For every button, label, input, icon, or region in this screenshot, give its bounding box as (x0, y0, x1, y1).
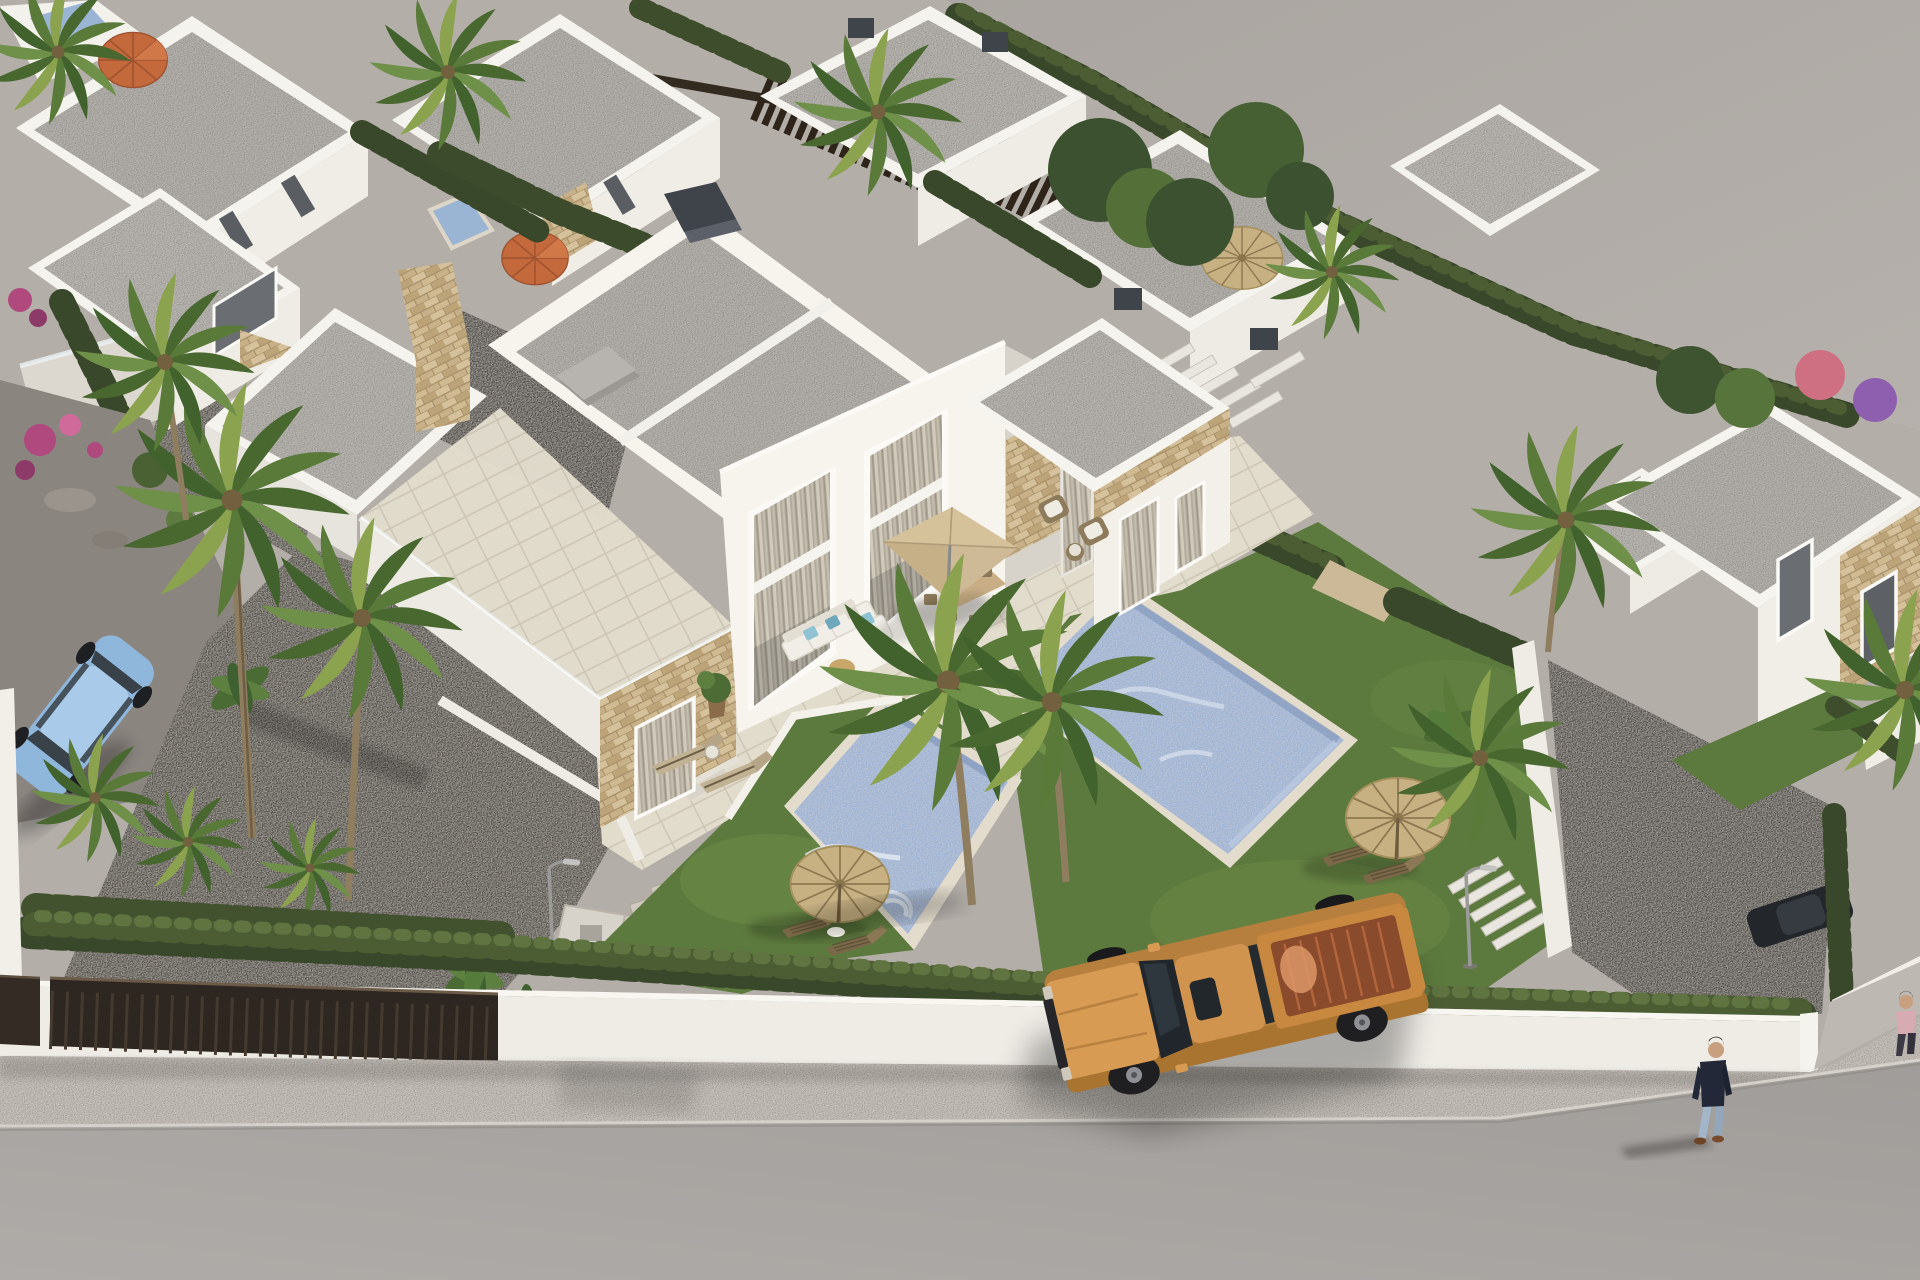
chimney (848, 18, 874, 38)
purple-shrub (1853, 378, 1897, 422)
pedestrian-gate (0, 976, 40, 1046)
aerial-render (0, 0, 1920, 1280)
render-canvas (0, 0, 1920, 1280)
coral-shrub (1795, 350, 1845, 400)
